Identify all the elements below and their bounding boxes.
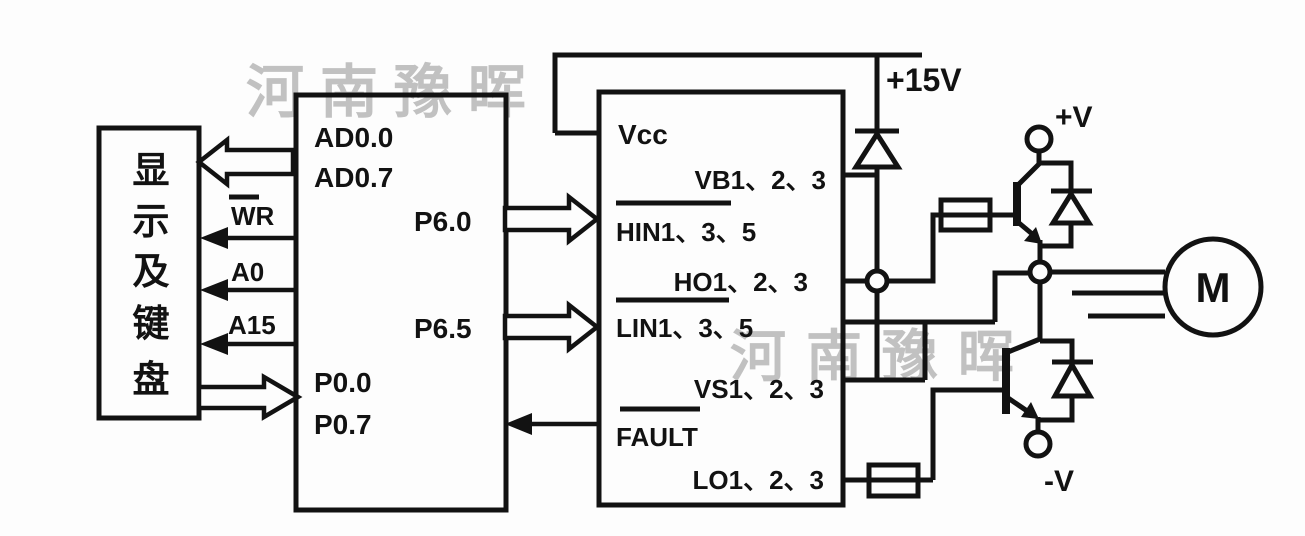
mcu-pin-p6-0: P6.0 bbox=[414, 206, 472, 237]
upper-collector-diag bbox=[1019, 163, 1040, 184]
lower-gate-wire bbox=[933, 390, 1004, 480]
display-keyboard-label: 显 示 及 键 盘 bbox=[133, 150, 170, 400]
driver-pin-lin: LIN1、3、5 bbox=[616, 313, 753, 343]
a15-arrowhead bbox=[200, 333, 228, 355]
mcu-pin-ad0-7: AD0.7 bbox=[314, 162, 393, 193]
address-bus-arrow bbox=[199, 140, 293, 184]
a0-arrowhead bbox=[200, 279, 228, 301]
mcu-pin-p6-5: P6.5 bbox=[414, 313, 472, 344]
driver-pin-fault: FAULT bbox=[616, 422, 698, 452]
upper-igbt bbox=[1017, 127, 1092, 262]
left-box-char-3: 及 bbox=[133, 251, 170, 292]
p0-data-bus-arrow bbox=[199, 377, 298, 417]
minus-v-label: -V bbox=[1044, 465, 1074, 498]
p60-hin-arrow bbox=[505, 197, 597, 241]
left-box-char-5: 盘 bbox=[133, 359, 170, 400]
lower-freewheel-diode bbox=[1055, 365, 1090, 396]
motor-label: M bbox=[1196, 264, 1231, 311]
circuit-diagram: 河南豫晖 河南豫晖 显 示 及 键 盘 AD0.0 AD0.7 P6.0 P6.… bbox=[0, 0, 1305, 536]
a0-signal-label: A0 bbox=[231, 257, 264, 287]
upper-freewheel-diode bbox=[1053, 194, 1089, 223]
p65-lin-arrow bbox=[505, 305, 597, 349]
plus-v-terminal bbox=[1027, 127, 1051, 151]
driver-pin-ho: HO1、2、3 bbox=[674, 267, 808, 297]
minus-v-terminal bbox=[1026, 432, 1050, 456]
left-box-char-2: 示 bbox=[133, 201, 170, 242]
wr-signal-label: WR bbox=[231, 201, 275, 231]
driver-pin-lo: LO1、2、3 bbox=[693, 465, 825, 495]
left-box-char-4: 键 bbox=[133, 303, 170, 344]
schematic-page: 河南豫晖 河南豫晖 显 示 及 键 盘 AD0.0 AD0.7 P6.0 P6.… bbox=[0, 0, 1305, 536]
mcu-pin-ad0-0: AD0.0 bbox=[314, 122, 393, 153]
phase-node-wire bbox=[995, 273, 1029, 322]
a15-signal-label: A15 bbox=[228, 310, 276, 340]
driver-pin-vs: VS1、2、3 bbox=[694, 374, 824, 404]
driver-pin-hin: HIN1、3、5 bbox=[616, 217, 756, 247]
plus15v-label: +15V bbox=[886, 62, 962, 98]
bootstrap-diode bbox=[856, 134, 898, 167]
mcu-box bbox=[296, 95, 506, 510]
ho-junction-node bbox=[867, 271, 887, 291]
fault-arrowhead bbox=[505, 413, 532, 435]
plus-v-label: +V bbox=[1055, 101, 1093, 134]
mcu-pin-p0-7: P0.7 bbox=[314, 409, 372, 440]
phase-output-node bbox=[1030, 262, 1050, 282]
mcu-pin-p0-0: P0.0 bbox=[314, 367, 372, 398]
driver-pin-vcc: Vcc bbox=[618, 119, 668, 150]
driver-pin-vb: VB1、2、3 bbox=[695, 165, 827, 195]
wr-arrowhead bbox=[200, 227, 228, 249]
left-box-char-1: 显 bbox=[133, 150, 170, 191]
